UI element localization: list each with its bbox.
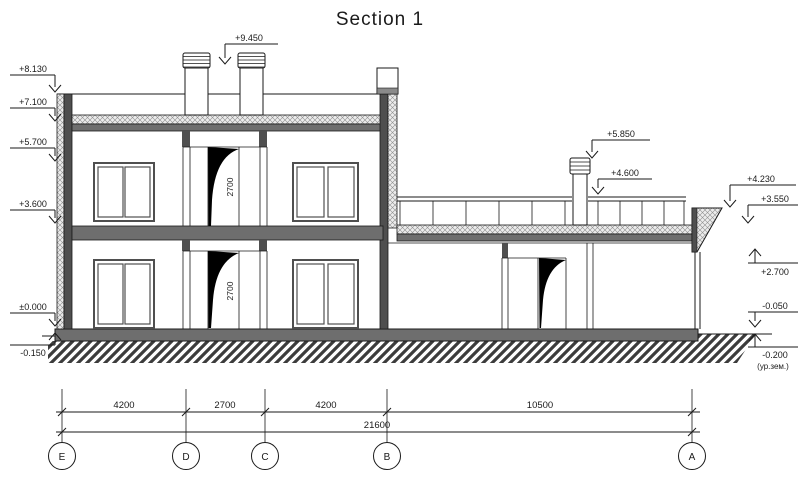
dim-e-d: 4200: [113, 400, 134, 411]
svg-text:+5.850: +5.850: [607, 129, 635, 139]
ground-level-note: (ур.зем.): [757, 362, 789, 371]
elevation-mark-terrace-railing-top: +4.600: [592, 168, 652, 194]
svg-text:+4.230: +4.230: [747, 174, 775, 184]
left-wall-insulation: [57, 94, 64, 329]
door-leaf-one-storey: [539, 258, 566, 328]
svg-text:+7.100: +7.100: [19, 97, 47, 107]
svg-text:±0.000: ±0.000: [19, 302, 46, 312]
chimney-left: [183, 53, 210, 115]
grid-axis-d: D: [182, 452, 189, 463]
door-height-label-first-floor: 2700: [225, 281, 235, 300]
svg-text:+3.550: +3.550: [761, 194, 789, 204]
window-2f-right: [293, 163, 358, 221]
right-wall: [380, 94, 388, 329]
door-height-label-second-floor: 2700: [225, 177, 235, 196]
svg-text:+3.600: +3.600: [19, 199, 47, 209]
terrace-roof-slab: [397, 234, 692, 241]
elevation-mark-second-window-head: +5.700: [10, 137, 61, 161]
terrace-railing: [397, 197, 686, 225]
grid-axis-b: B: [384, 452, 391, 463]
elevation-mark-terrace-chimney-top: +5.850: [586, 129, 650, 158]
terrace-chimney: [570, 158, 590, 225]
svg-text:-0.050: -0.050: [762, 301, 788, 311]
second-floor-interior: 2700: [94, 131, 358, 226]
elevation-mark-ground-floor: ±0.000: [10, 302, 61, 326]
drawing-sheet: Section 1: [0, 0, 800, 489]
right-wall-insulation: [388, 94, 397, 228]
dim-c-b: 4200: [315, 400, 336, 411]
svg-text:-0.150: -0.150: [20, 348, 46, 358]
svg-text:+2.700: +2.700: [761, 267, 789, 277]
section-drawing: Section 1: [0, 0, 800, 489]
dim-d-c: 2700: [214, 400, 235, 411]
terrace-roof-insulation: [397, 225, 692, 234]
dimension-lines: 4200 2700 4200 10500 21600: [56, 389, 700, 442]
grid-axis-a: A: [689, 452, 696, 463]
dim-b-a: 10500: [527, 400, 553, 411]
window-1f-right: [293, 260, 358, 328]
svg-text:+4.600: +4.600: [611, 168, 639, 178]
grid-axes: E D C B A: [49, 443, 706, 470]
elevation-mark-second-floor: +3.600: [10, 199, 61, 223]
svg-text:+9.450: +9.450: [235, 33, 263, 43]
dim-total: 21600: [364, 420, 390, 431]
foundation-slab: [55, 329, 698, 341]
elevation-mark-one-storey-ceiling: +2.700: [748, 249, 798, 277]
svg-text:+8.130: +8.130: [19, 64, 47, 74]
elevation-mark-one-storey-floor: -0.050: [748, 301, 798, 327]
roof-slab: [72, 124, 383, 131]
elevation-mark-terrace-roof-top: +3.550: [742, 194, 798, 223]
one-storey-interior: [502, 243, 593, 329]
elevation-mark-parapet-top: +8.130: [10, 64, 61, 92]
window-1f-left: [94, 260, 154, 328]
grid-axis-e: E: [59, 452, 66, 463]
roof-insulation: [72, 115, 383, 124]
grid-axis-c: C: [261, 452, 268, 463]
window-2f-left: [94, 163, 154, 221]
svg-text:+5.700: +5.700: [19, 137, 47, 147]
one-storey-block: [388, 208, 722, 329]
elevation-mark-roof-top: +7.100: [10, 97, 61, 121]
page-title: Section 1: [336, 9, 424, 30]
elevation-mark-ground-level-right: -0.200 (ур.зем.): [748, 334, 798, 371]
chimney-right: [238, 53, 265, 115]
second-floor-slab: [72, 226, 383, 240]
first-floor-interior: 2700: [94, 240, 358, 329]
left-wall: [64, 94, 72, 329]
svg-text:-0.200: -0.200: [762, 350, 788, 360]
